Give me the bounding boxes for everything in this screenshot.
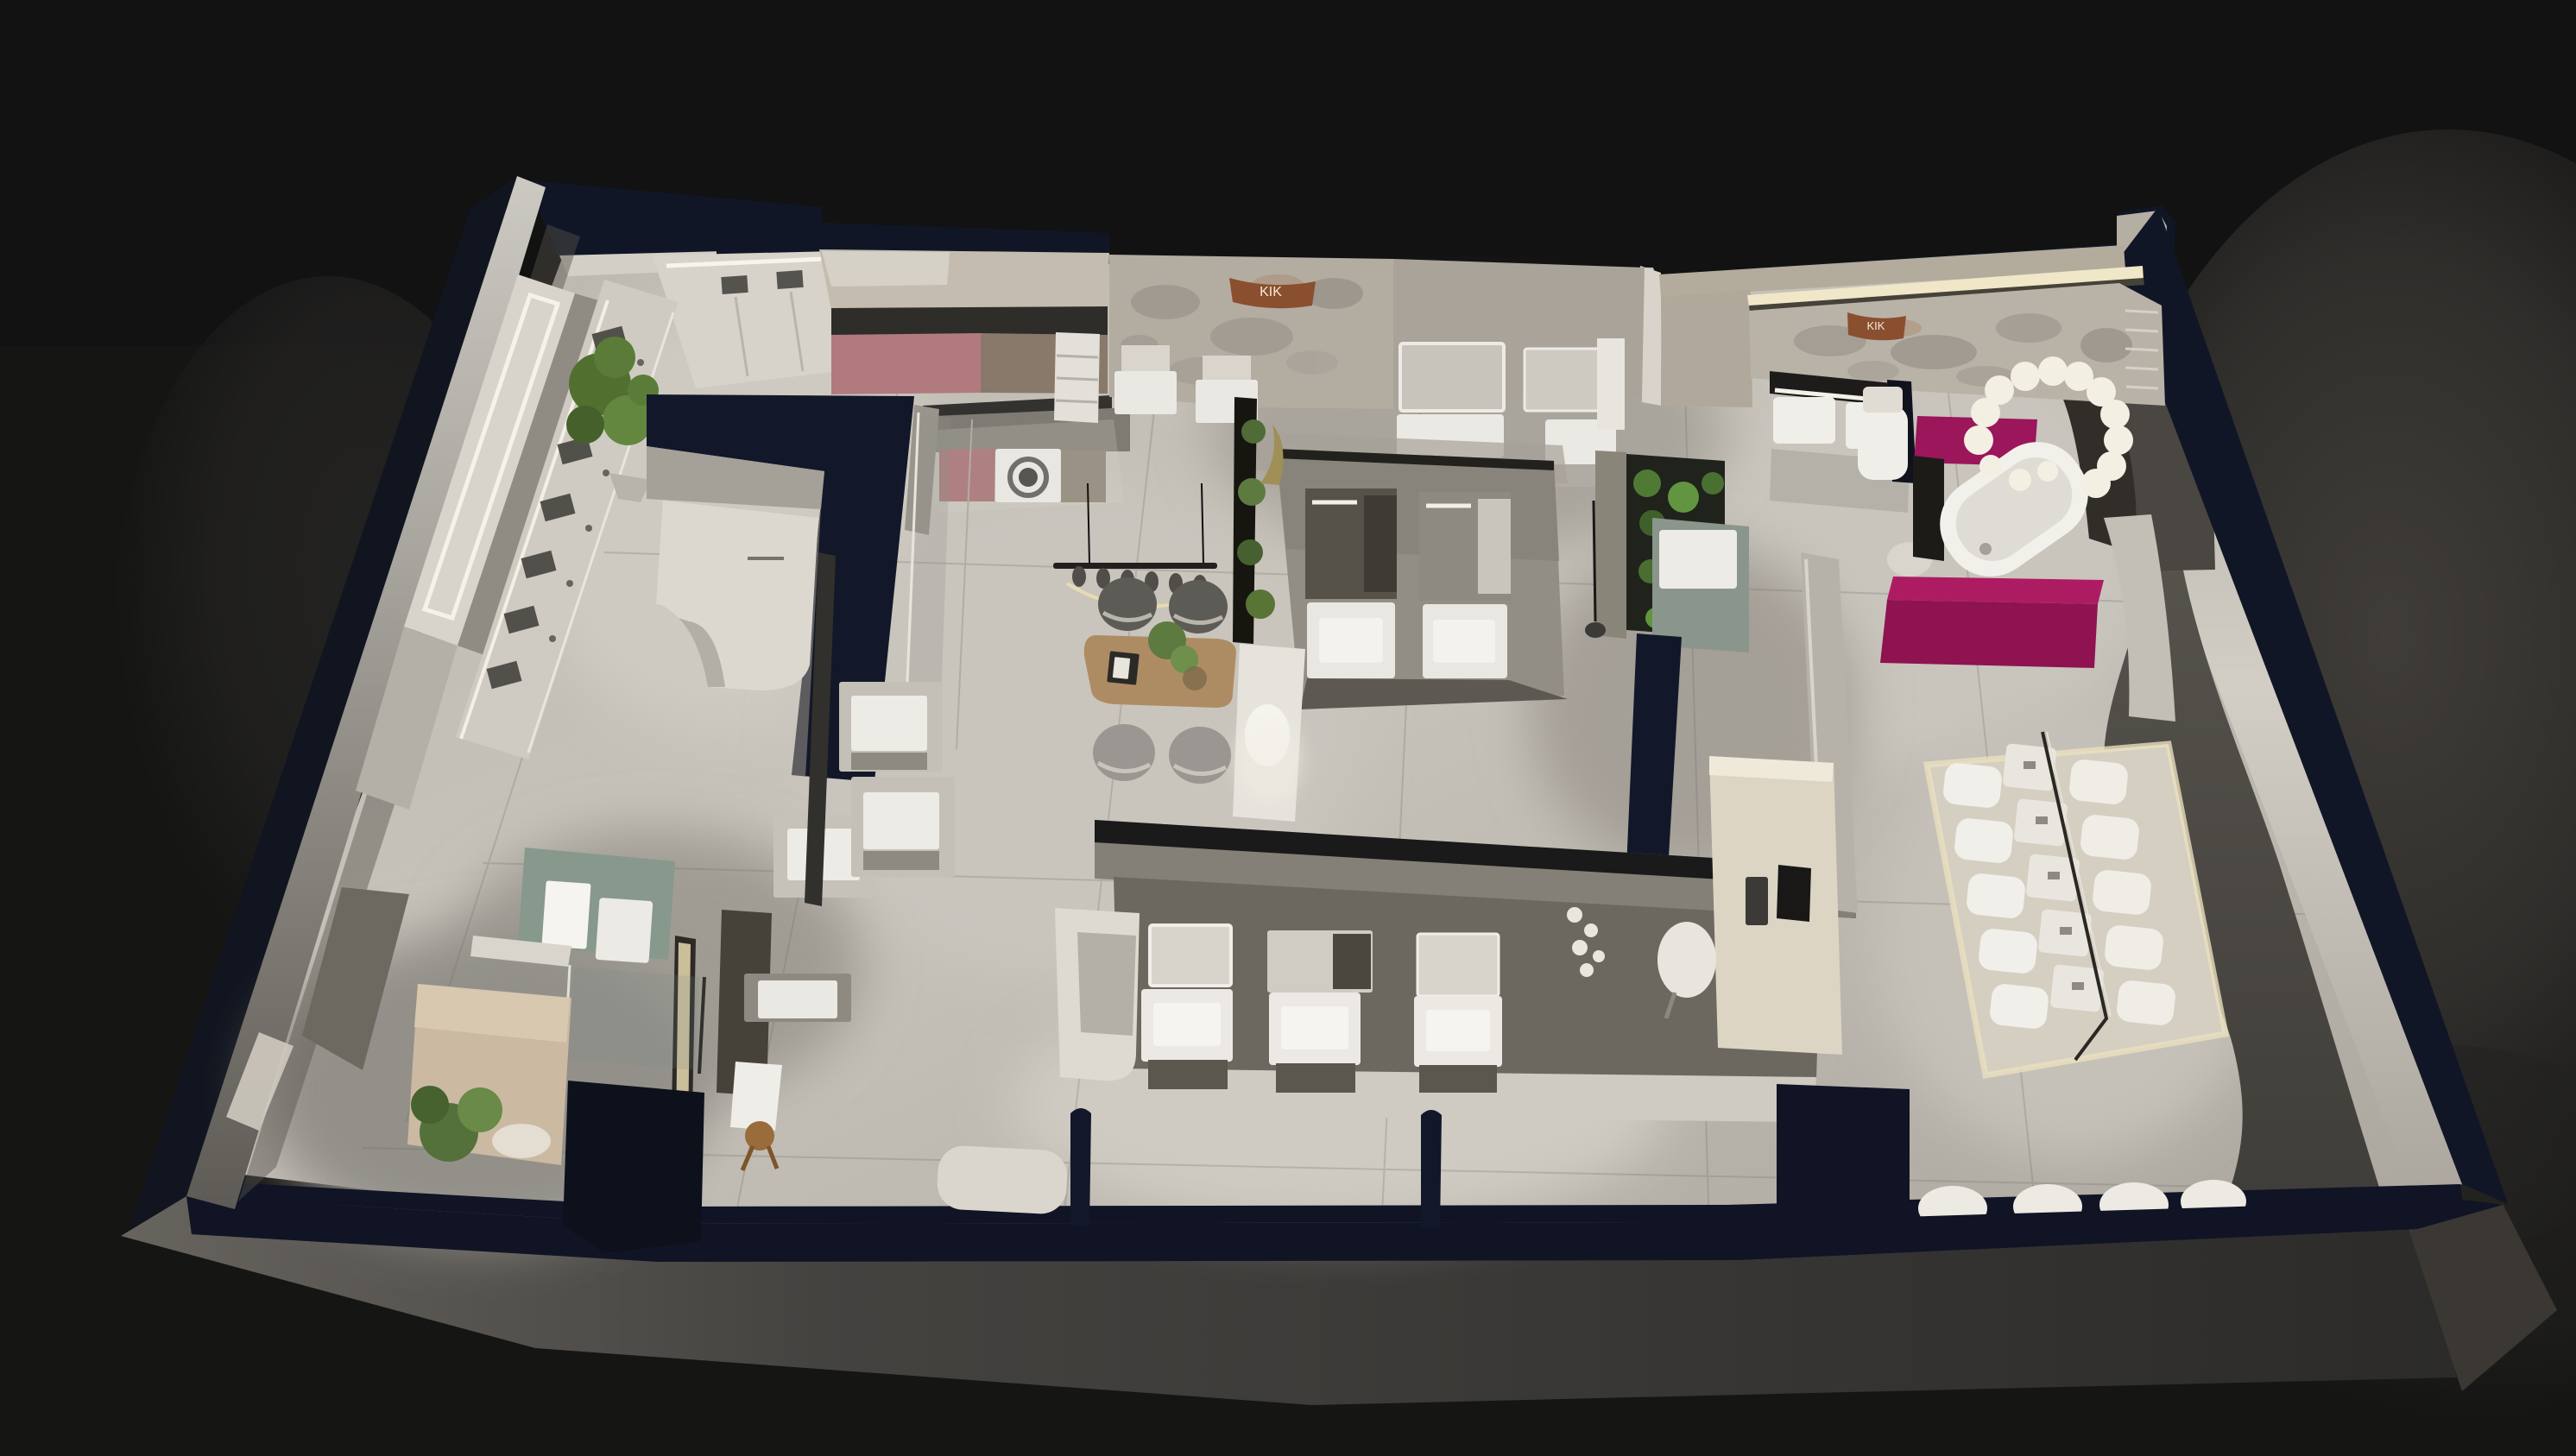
svg-text:KIK: KIK [1867,319,1885,332]
svg-text:KIK: KIK [1260,285,1282,299]
